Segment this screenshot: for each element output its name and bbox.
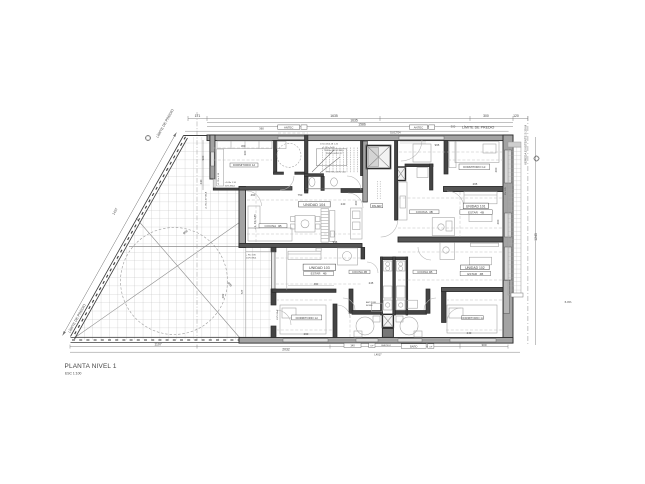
svg-text:PLANTA NIVEL 1: PLANTA NIVEL 1 <box>65 363 117 370</box>
svg-text:17x0.18x0.28 1.25: 17x0.18x0.28 1.25 <box>320 144 339 146</box>
svg-text:UP: UP <box>429 346 433 348</box>
svg-text:+1.05x 1.10: +1.05x 1.10 <box>225 182 237 184</box>
svg-text:1075.98x4: 1075.98x4 <box>277 309 279 320</box>
svg-text:240: 240 <box>467 331 472 335</box>
svg-text:78.60 x.028 (1.250): 78.60 x.028 (1.250) <box>324 150 343 152</box>
svg-text:ESTAR 4B: ESTAR 4B <box>467 272 483 276</box>
svg-text:ESTAR 4B: ESTAR 4B <box>468 211 484 215</box>
svg-text:ANTEC: ANTEC <box>414 125 423 129</box>
svg-text:1075.98: 1075.98 <box>443 301 445 310</box>
svg-text:+1.05 x 1.10: +1.05 x 1.10 <box>218 172 220 185</box>
svg-text:360: 360 <box>259 127 264 131</box>
svg-text:282: 282 <box>221 293 225 298</box>
svg-text:200: 200 <box>354 200 358 205</box>
svg-text:+ P.b 3.85: + P.b 3.85 <box>246 254 257 256</box>
svg-text:965: 965 <box>435 143 440 147</box>
svg-text:1437: 1437 <box>112 207 119 216</box>
svg-text:COCINA 4B: COCINA 4B <box>416 210 433 214</box>
svg-text:SUC704: SUC704 <box>390 131 401 135</box>
svg-text:360: 360 <box>241 144 246 148</box>
svg-text:265: 265 <box>473 182 478 186</box>
svg-text:245: 245 <box>369 281 374 285</box>
svg-text:COCINA 4B: COCINA 4B <box>352 270 367 274</box>
svg-text:1243: 1243 <box>534 233 538 241</box>
svg-text:DORMITORIO 1d: DORMITORIO 1d <box>233 163 255 167</box>
svg-text:UNIDAD 104: UNIDAD 104 <box>303 203 325 207</box>
svg-text:DORMITORIO 1d: DORMITORIO 1d <box>463 165 485 169</box>
svg-text:1075.98x4: 1075.98x4 <box>225 185 236 187</box>
svg-text:P.b 3.85: P.b 3.85 <box>505 186 507 195</box>
svg-text:1107: 1107 <box>154 343 161 347</box>
svg-text:UP: UP <box>370 346 374 348</box>
svg-text:COCINA 4B: COCINA 4B <box>264 224 281 228</box>
svg-text:200: 200 <box>494 167 498 172</box>
svg-text:171: 171 <box>195 114 201 118</box>
svg-text:ANT.P038: ANT.P038 <box>366 301 377 304</box>
svg-text:ANTEC: ANTEC <box>284 125 293 129</box>
svg-text:200: 200 <box>496 219 500 224</box>
svg-text:ESTAR 4B: ESTAR 4B <box>311 272 327 276</box>
svg-text:+1.05x1.10 VELA: +1.05x1.10 VELA <box>205 191 208 209</box>
svg-text:UNIDAD 103: UNIDAD 103 <box>309 266 330 270</box>
svg-text:6.0%: 6.0% <box>565 300 572 304</box>
svg-text:COCINA 4B: COCINA 4B <box>417 270 432 274</box>
svg-text:1586: 1586 <box>358 122 366 126</box>
svg-text:946: 946 <box>333 240 338 244</box>
svg-text:2032: 2032 <box>282 348 290 352</box>
svg-text:+ 1. P.b 3.85: + 1. P.b 3.85 <box>253 214 257 230</box>
svg-text:300: 300 <box>483 114 489 118</box>
svg-text:240: 240 <box>341 202 346 206</box>
svg-text:DORMITORIO 1d: DORMITORIO 1d <box>461 316 483 320</box>
svg-text:750: 750 <box>298 193 303 197</box>
svg-text:140: 140 <box>350 344 355 348</box>
svg-text:UNIDAD 101: UNIDAD 101 <box>466 205 486 209</box>
svg-text:BHE7624: BHE7624 <box>381 345 391 347</box>
svg-text:300: 300 <box>481 343 486 347</box>
svg-text:120: 120 <box>513 114 519 118</box>
svg-text:DORMITORIO 1d: DORMITORIO 1d <box>296 316 318 320</box>
svg-text:1075.98x4: 1075.98x4 <box>246 258 257 260</box>
svg-text:1635: 1635 <box>330 114 338 118</box>
svg-text:UNIDAD 102: UNIDAD 102 <box>465 266 485 270</box>
svg-text:LÍMITE DE PREDIO: LÍMITE DE PREDIO <box>462 126 495 130</box>
svg-text:BOMB: BOMB <box>366 305 373 307</box>
svg-text:LÍMITE DE PREDIO: LÍMITE DE PREDIO <box>156 108 175 138</box>
svg-text:+1.28 x 2x05: +1.28 x 2x05 <box>322 147 335 149</box>
svg-text:L4017: L4017 <box>374 353 382 357</box>
svg-text:460: 460 <box>251 193 256 197</box>
svg-text:360: 360 <box>243 150 247 155</box>
svg-text:VEREDA EXISTENTE S 20 M: VEREDA EXISTENTE S 20 M <box>524 125 528 166</box>
svg-text:727: 727 <box>240 289 244 294</box>
svg-text:240: 240 <box>199 179 203 184</box>
svg-text:260: 260 <box>304 332 309 336</box>
svg-text:PROYECCION V.04: PROYECCION V.04 <box>326 172 346 174</box>
svg-text:460: 460 <box>314 282 319 286</box>
svg-text:ESC 1:100: ESC 1:100 <box>65 372 82 376</box>
svg-text:1635: 1635 <box>350 118 358 122</box>
svg-text:P8.60 x.028 1.27: P8.60 x.028 1.27 <box>326 153 343 155</box>
svg-text:PALIER: PALIER <box>372 204 382 208</box>
